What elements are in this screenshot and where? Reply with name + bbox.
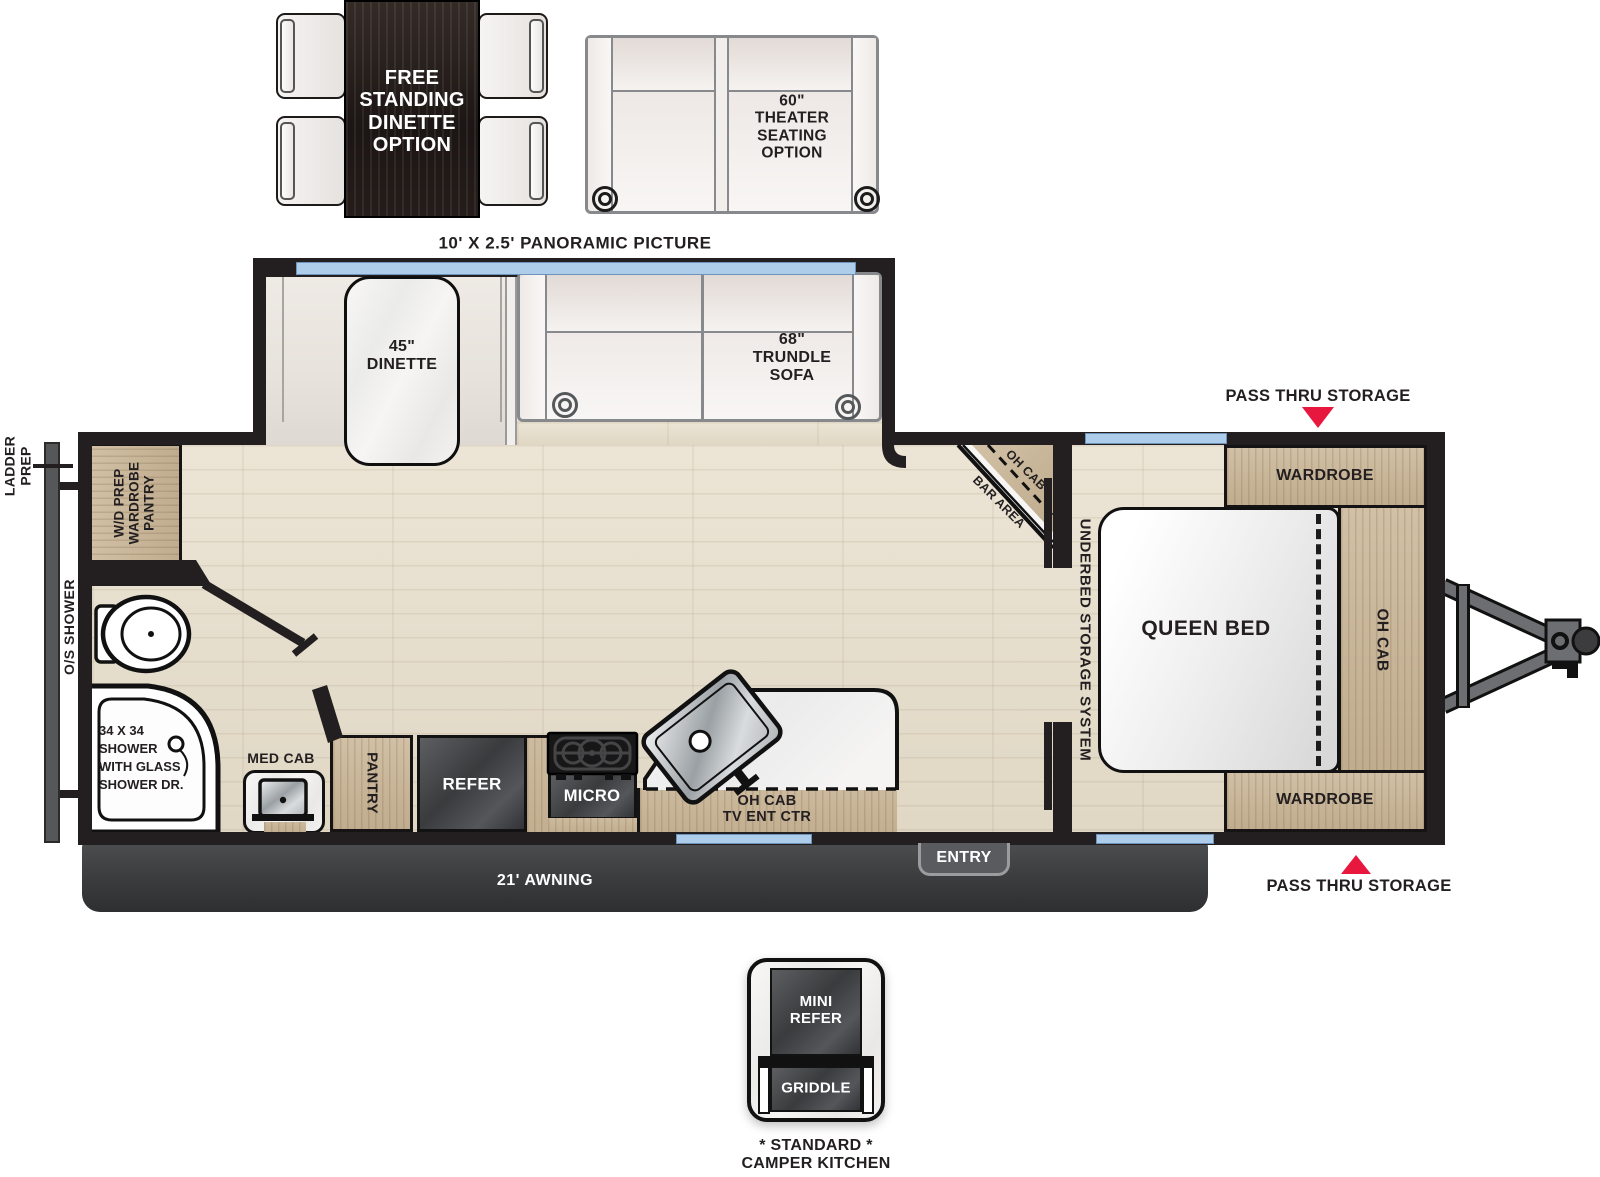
dinette-bench-line — [500, 277, 502, 422]
dinette-option-chair — [276, 13, 346, 99]
dinette-option-chair — [478, 116, 548, 206]
outside-shower-panel — [44, 442, 60, 843]
camper-kitchen-bar — [758, 1056, 874, 1066]
dinette-bench-line — [282, 277, 284, 422]
griddle-side-rail — [758, 1066, 770, 1114]
theater-cupholder-icon — [592, 186, 618, 212]
mini-refer-label: MINI REFER — [790, 994, 842, 1028]
awning-label: 21' AWNING — [497, 872, 593, 890]
theater-seating-label: 60" THEATER SEATING OPTION — [755, 92, 829, 161]
bedroom-window-bottom — [1096, 834, 1214, 844]
pass-thru-arrow-bottom-icon — [1341, 855, 1371, 874]
free-standing-dinette-label: FREE STANDING DINETTE OPTION — [359, 67, 464, 157]
dinette-label: 45" DINETTE — [367, 338, 438, 374]
theater-backrest — [588, 38, 876, 92]
trundle-sofa-backrest — [520, 275, 879, 333]
theater-armrest-left — [588, 38, 613, 211]
pass-thru-storage-top-label: PASS THRU STORAGE — [1225, 387, 1410, 405]
floorplan-canvas: FREE STANDING DINETTE OPTION 60" THEATER… — [0, 0, 1600, 1177]
awning-band — [82, 843, 1208, 912]
slideout-wall-left — [253, 258, 266, 445]
entry-label: ENTRY — [936, 849, 991, 867]
slideout-front-floor — [517, 422, 882, 445]
trundle-sofa-armrest-left — [520, 275, 547, 419]
kitchen-window-bottom — [676, 834, 812, 844]
micro-label: MICRO — [564, 787, 621, 805]
wardrobe-front-label: WARDROBE — [1276, 467, 1374, 485]
theater-cupholder-icon — [854, 186, 880, 212]
slideout-divider-wall — [505, 277, 517, 445]
slideout-wall-right — [882, 258, 895, 445]
trundle-sofa-seat-divider — [701, 275, 704, 419]
pantry-label: PANTRY — [363, 752, 380, 814]
queen-bed-label: QUEEN BED — [1141, 617, 1270, 641]
pass-thru-storage-bottom-label: PASS THRU STORAGE — [1266, 877, 1451, 895]
sofa-cupholder-icon — [552, 392, 578, 418]
panoramic-picture-label: 10' X 2.5' PANORAMIC PICTURE — [438, 233, 711, 252]
ladder-prep-tick — [33, 464, 73, 468]
dinette-option-chair — [478, 13, 548, 99]
shower-label: 34 X 34 SHOWER WITH GLASS SHOWER DR. — [99, 722, 209, 802]
griddle-label: GRIDDLE — [781, 1081, 851, 1098]
theater-console — [714, 38, 729, 211]
ladder-prep-label: LADDER PREP — [2, 436, 33, 496]
tv-center-label: OH CAB TV ENT CTR — [723, 793, 811, 825]
theater-seating-option — [585, 35, 879, 214]
med-cab-label: MED CAB — [247, 751, 314, 767]
wd-prep-label: W/D PREP WARDROBE PANTRY — [111, 462, 156, 545]
sofa-cupholder-icon — [835, 394, 861, 420]
bedroom-oh-cab-label: OH CAB — [1373, 609, 1390, 672]
outside-shower-label: O/S SHOWER — [62, 579, 78, 675]
bedroom-window-top — [1085, 433, 1227, 444]
griddle-side-rail — [862, 1066, 874, 1114]
dinette-option-chair — [276, 116, 346, 206]
wardrobe-rear-label: WARDROBE — [1276, 791, 1374, 809]
slideout-window — [296, 262, 856, 275]
trailer-hitch-icon — [1443, 584, 1599, 708]
camper-kitchen-note: * STANDARD * CAMPER KITCHEN — [741, 1137, 890, 1173]
pass-thru-arrow-top-icon — [1302, 407, 1334, 428]
underbed-storage-label: UNDERBED STORAGE SYSTEM — [1076, 519, 1093, 762]
refer-label: REFER — [442, 774, 501, 793]
theater-armrest-right — [851, 38, 876, 211]
trundle-sofa-label: 68" TRUNDLE SOFA — [753, 331, 832, 385]
